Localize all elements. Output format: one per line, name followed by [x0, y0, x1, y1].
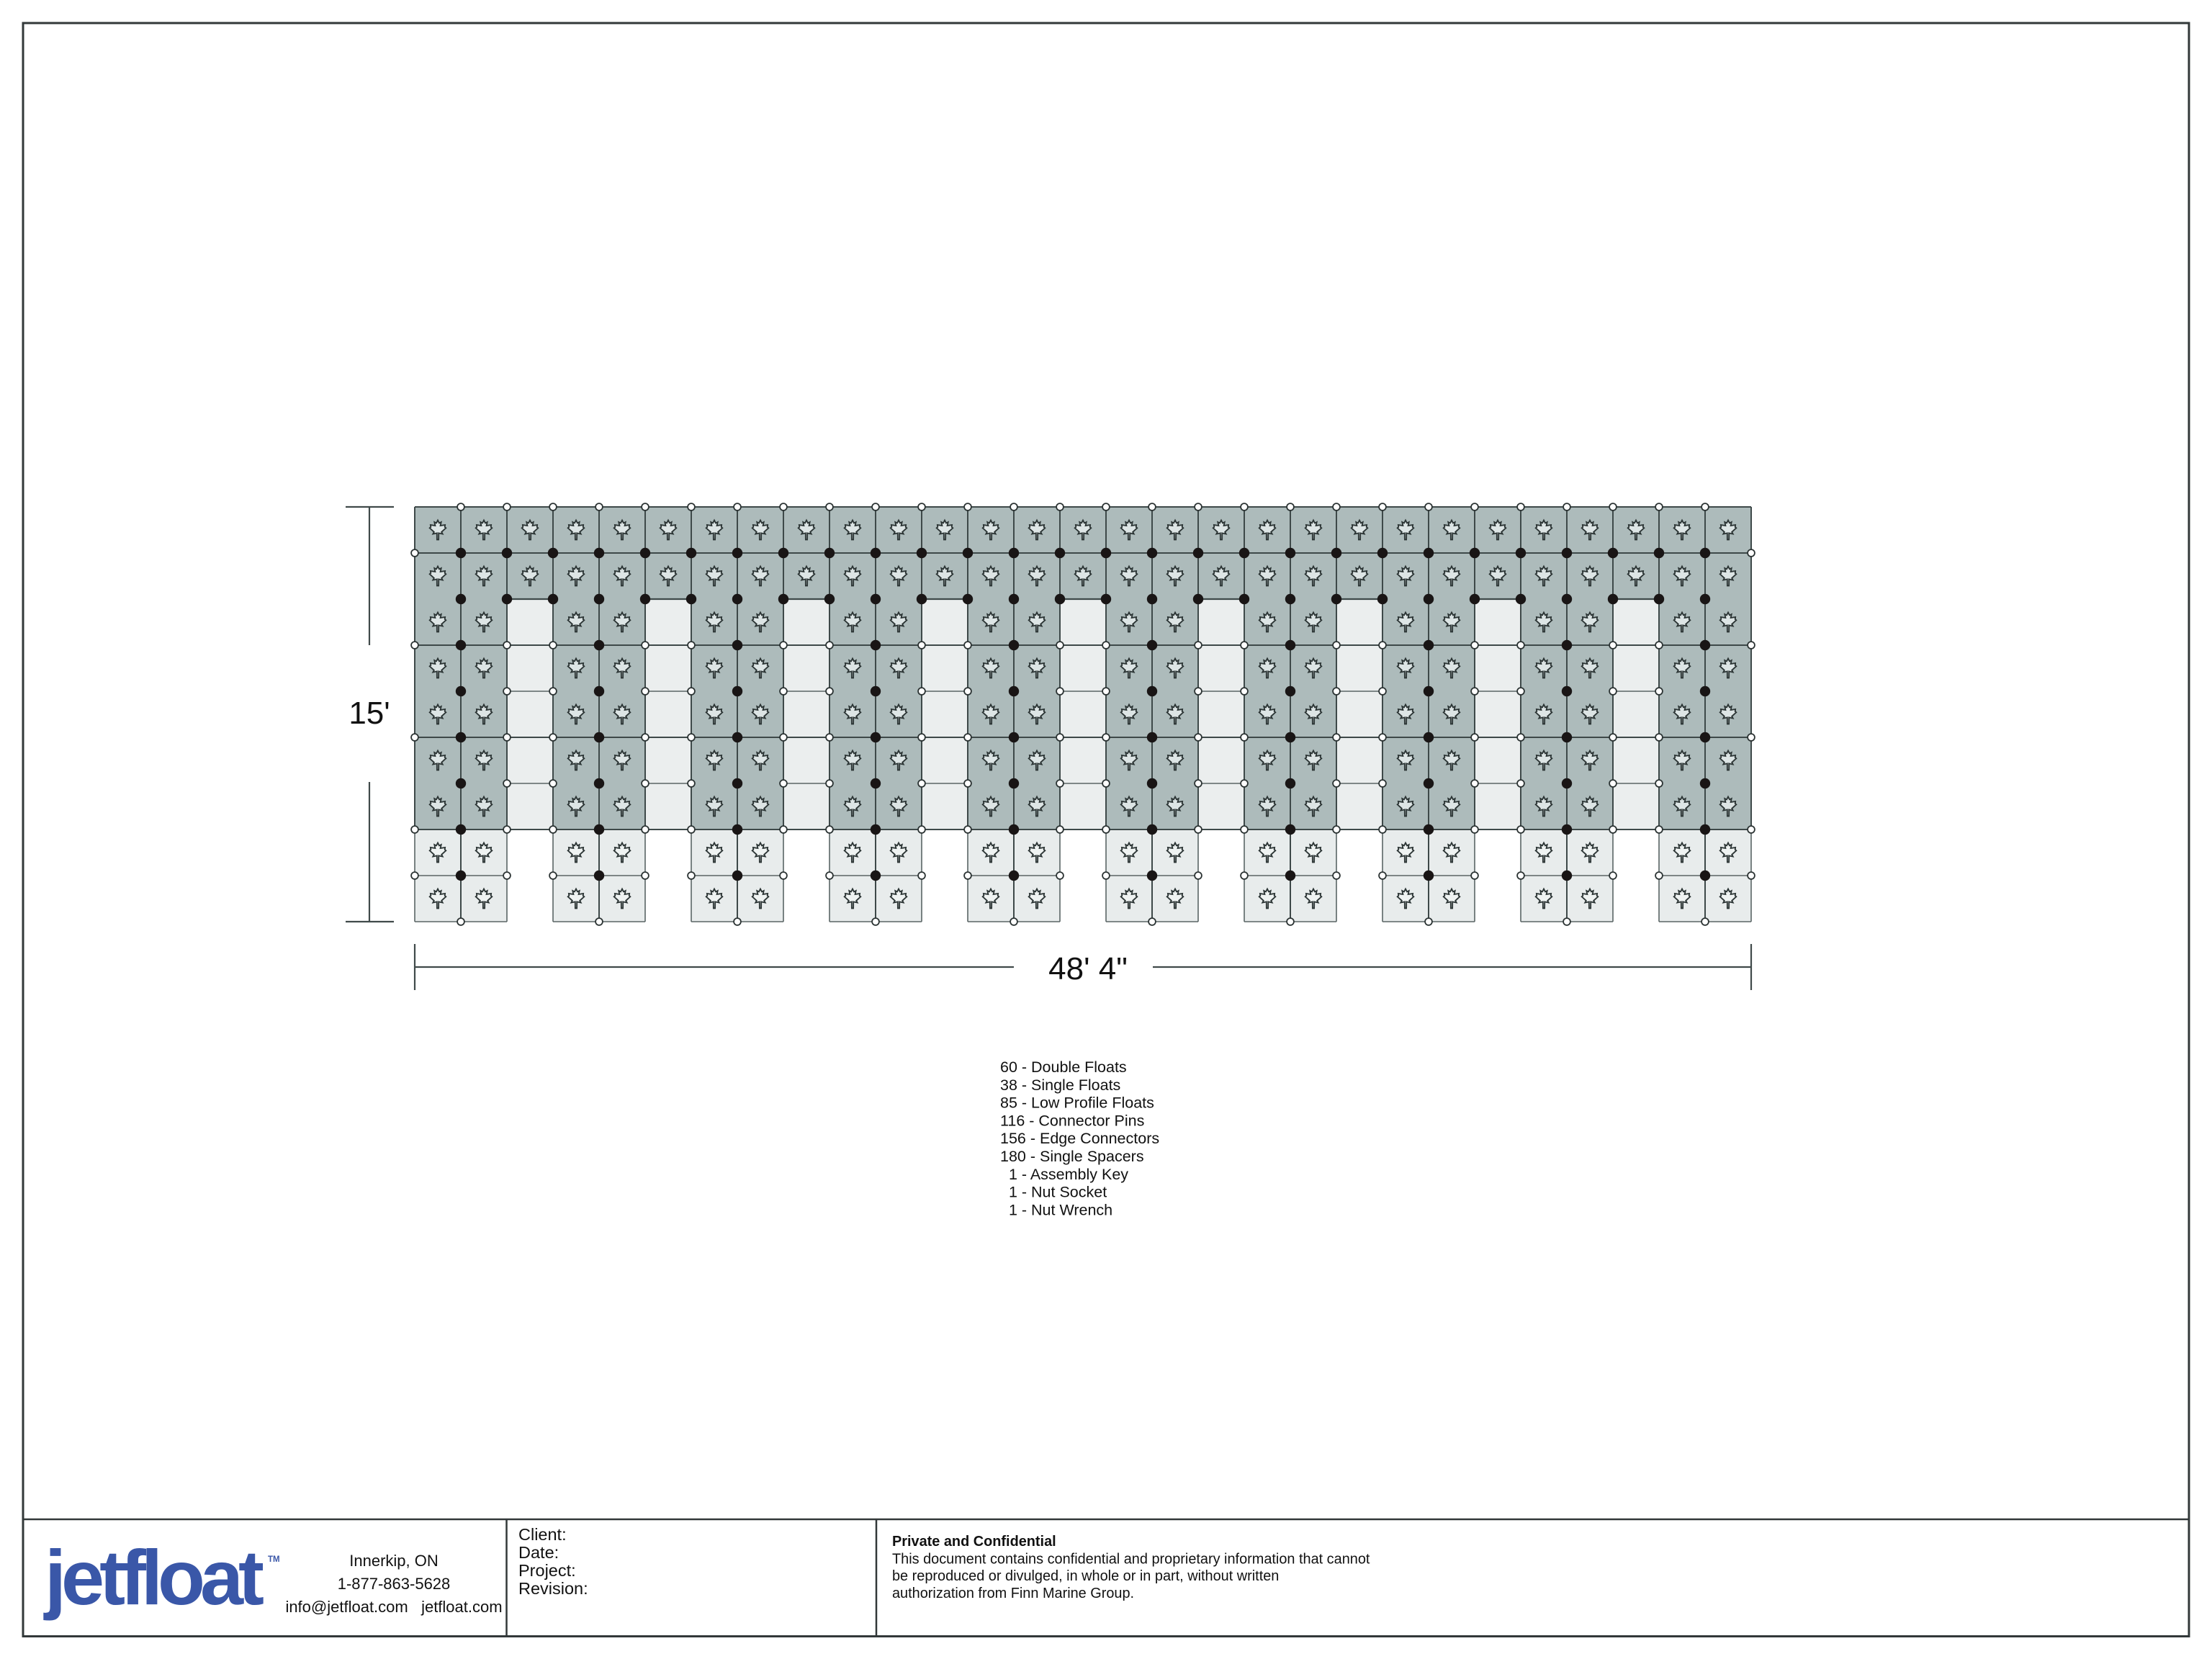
svg-text:156 - Edge Connectors: 156 - Edge Connectors — [1000, 1130, 1159, 1147]
svg-text:38 - Single Floats: 38 - Single Floats — [1000, 1076, 1120, 1094]
svg-text:1 - Nut Socket: 1 - Nut Socket — [1000, 1184, 1107, 1201]
svg-text:1-877-863-5628: 1-877-863-5628 — [338, 1575, 451, 1593]
svg-text:TM: TM — [268, 1555, 280, 1564]
svg-text:Innerkip, ON: Innerkip, ON — [349, 1552, 439, 1570]
svg-text:Revision:: Revision: — [518, 1579, 588, 1598]
svg-text:Private and Confidential: Private and Confidential — [892, 1534, 1056, 1550]
svg-text:15': 15' — [349, 696, 390, 731]
svg-text:116 - Connector Pins: 116 - Connector Pins — [1000, 1112, 1144, 1129]
svg-text:180 - Single Spacers: 180 - Single Spacers — [1000, 1148, 1144, 1165]
svg-text:be reproduced or divulged, in: be reproduced or divulged, in whole or i… — [892, 1568, 1279, 1584]
svg-text:jetfloat: jetfloat — [43, 1534, 264, 1621]
svg-text:This document contains confide: This document contains confidential and … — [892, 1552, 1370, 1568]
svg-text:85 - Low Profile Floats: 85 - Low Profile Floats — [1000, 1094, 1154, 1112]
svg-text:1 - Nut Wrench: 1 - Nut Wrench — [1000, 1201, 1112, 1218]
svg-text:authorization from Finn Marine: authorization from Finn Marine Group. — [892, 1586, 1134, 1601]
svg-text:Date:: Date: — [518, 1543, 559, 1562]
svg-text:Project:: Project: — [518, 1561, 576, 1580]
svg-text:48' 4": 48' 4" — [1048, 951, 1128, 986]
svg-text:60 - Double Floats: 60 - Double Floats — [1000, 1058, 1127, 1076]
svg-text:1 - Assembly Key: 1 - Assembly Key — [1000, 1166, 1128, 1183]
svg-text:info@jetfloat.com jetfloat.c: info@jetfloat.com jetfloat.com — [285, 1598, 502, 1616]
svg-text:Client:: Client: — [518, 1525, 567, 1544]
